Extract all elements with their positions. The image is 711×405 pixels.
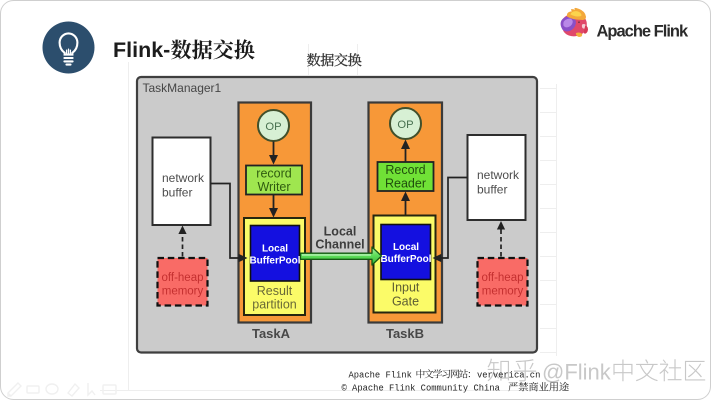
svg-text:network: network xyxy=(477,168,520,182)
svg-text:Flink-: Flink- xyxy=(113,38,170,62)
svg-text:partition: partition xyxy=(252,298,297,312)
svg-text:Reader: Reader xyxy=(385,177,426,191)
svg-text:memory: memory xyxy=(482,286,524,298)
svg-text:OP: OP xyxy=(397,119,413,131)
svg-text:buffer: buffer xyxy=(162,186,192,200)
svg-text:network: network xyxy=(162,171,205,185)
svg-text:off-heap: off-heap xyxy=(482,272,524,284)
svg-text:TaskB: TaskB xyxy=(386,326,424,341)
svg-text:Local: Local xyxy=(393,242,419,253)
svg-text:Writer: Writer xyxy=(257,180,290,194)
svg-text:Apache Flink: Apache Flink xyxy=(349,371,412,381)
svg-text:@Flink: @Flink xyxy=(542,360,612,385)
svg-text:BufferPool: BufferPool xyxy=(249,256,300,267)
svg-text:ververica.cn: ververica.cn xyxy=(477,371,540,381)
svg-text:Result: Result xyxy=(257,284,293,298)
svg-text:© Apache Flink Community China: © Apache Flink Community China xyxy=(342,384,500,394)
svg-text:Local: Local xyxy=(324,225,357,239)
svg-text:Gate: Gate xyxy=(392,295,419,309)
svg-text:TaskA: TaskA xyxy=(252,326,291,341)
svg-text:Apache Flink: Apache Flink xyxy=(597,22,690,40)
svg-text:off-heap: off-heap xyxy=(162,272,204,284)
svg-text:TaskManager1: TaskManager1 xyxy=(143,81,222,95)
svg-text:Record: Record xyxy=(385,163,425,177)
svg-text:Input: Input xyxy=(392,281,420,295)
svg-text:record: record xyxy=(256,167,291,181)
svg-text:Channel: Channel xyxy=(315,238,364,252)
svg-text:Local: Local xyxy=(262,244,288,255)
svg-text:buffer: buffer xyxy=(477,183,507,197)
svg-text:BufferPool: BufferPool xyxy=(380,254,431,265)
svg-text:OP: OP xyxy=(265,121,281,133)
svg-text:memory: memory xyxy=(162,286,204,298)
